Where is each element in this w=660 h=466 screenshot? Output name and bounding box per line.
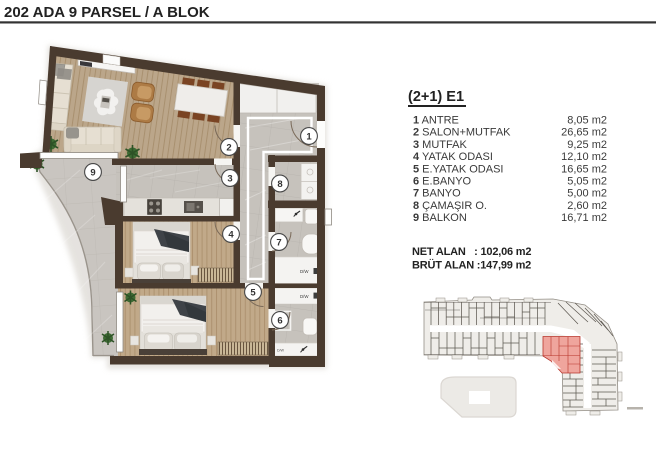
- svg-text:D/W: D/W: [300, 269, 309, 274]
- svg-text:7: 7: [276, 238, 281, 249]
- svg-text:3: 3: [227, 174, 232, 185]
- svg-text:8,05 m2: 8,05 m2: [567, 115, 607, 127]
- svg-text:12,10 m2: 12,10 m2: [561, 151, 607, 163]
- svg-text:8: 8: [277, 179, 282, 190]
- svg-text:16,71 m2: 16,71 m2: [561, 212, 607, 224]
- svg-text:NET ALAN : 102,06 m2: NET ALAN : 102,06 m2: [412, 246, 531, 258]
- svg-text:26,65 m2: 26,65 m2: [561, 127, 607, 139]
- svg-text:2 SALON+MUTFAK: 2 SALON+MUTFAK: [413, 127, 511, 139]
- svg-text:5,00 m2: 5,00 m2: [567, 188, 607, 200]
- svg-text:D/W: D/W: [300, 294, 309, 299]
- svg-text:202 ADA 9 PARSEL / A BLOK: 202 ADA 9 PARSEL / A BLOK: [4, 4, 210, 21]
- svg-text:9,25 m2: 9,25 m2: [567, 139, 607, 151]
- svg-text:BRÜT ALAN :147,99 m2: BRÜT ALAN :147,99 m2: [412, 259, 531, 272]
- svg-text:7 BANYO: 7 BANYO: [413, 188, 461, 200]
- svg-text:9 BALKON: 9 BALKON: [413, 212, 467, 224]
- svg-text:4: 4: [228, 230, 234, 241]
- svg-text:16,65 m2: 16,65 m2: [561, 163, 607, 175]
- svg-text:5 E.YATAK ODASI: 5 E.YATAK ODASI: [413, 163, 503, 175]
- svg-text:6 E.BANYO: 6 E.BANYO: [413, 176, 472, 188]
- svg-text:4 YATAK ODASI: 4 YATAK ODASI: [413, 151, 493, 163]
- svg-text:8 ÇAMAŞIR O.: 8 ÇAMAŞIR O.: [413, 200, 487, 212]
- svg-text:6: 6: [277, 316, 282, 327]
- svg-text:2: 2: [226, 143, 231, 154]
- svg-text:D/W: D/W: [277, 349, 285, 353]
- svg-text:1: 1: [306, 132, 312, 143]
- svg-text:2,60 m2: 2,60 m2: [567, 200, 607, 212]
- svg-text:5,05 m2: 5,05 m2: [567, 176, 607, 188]
- svg-text:3 MUTFAK: 3 MUTFAK: [413, 139, 467, 151]
- svg-text:(2+1) E1: (2+1) E1: [408, 89, 464, 105]
- svg-text:1 ANTRE: 1 ANTRE: [413, 115, 459, 127]
- svg-text:5: 5: [250, 288, 256, 299]
- svg-text:9: 9: [90, 168, 95, 179]
